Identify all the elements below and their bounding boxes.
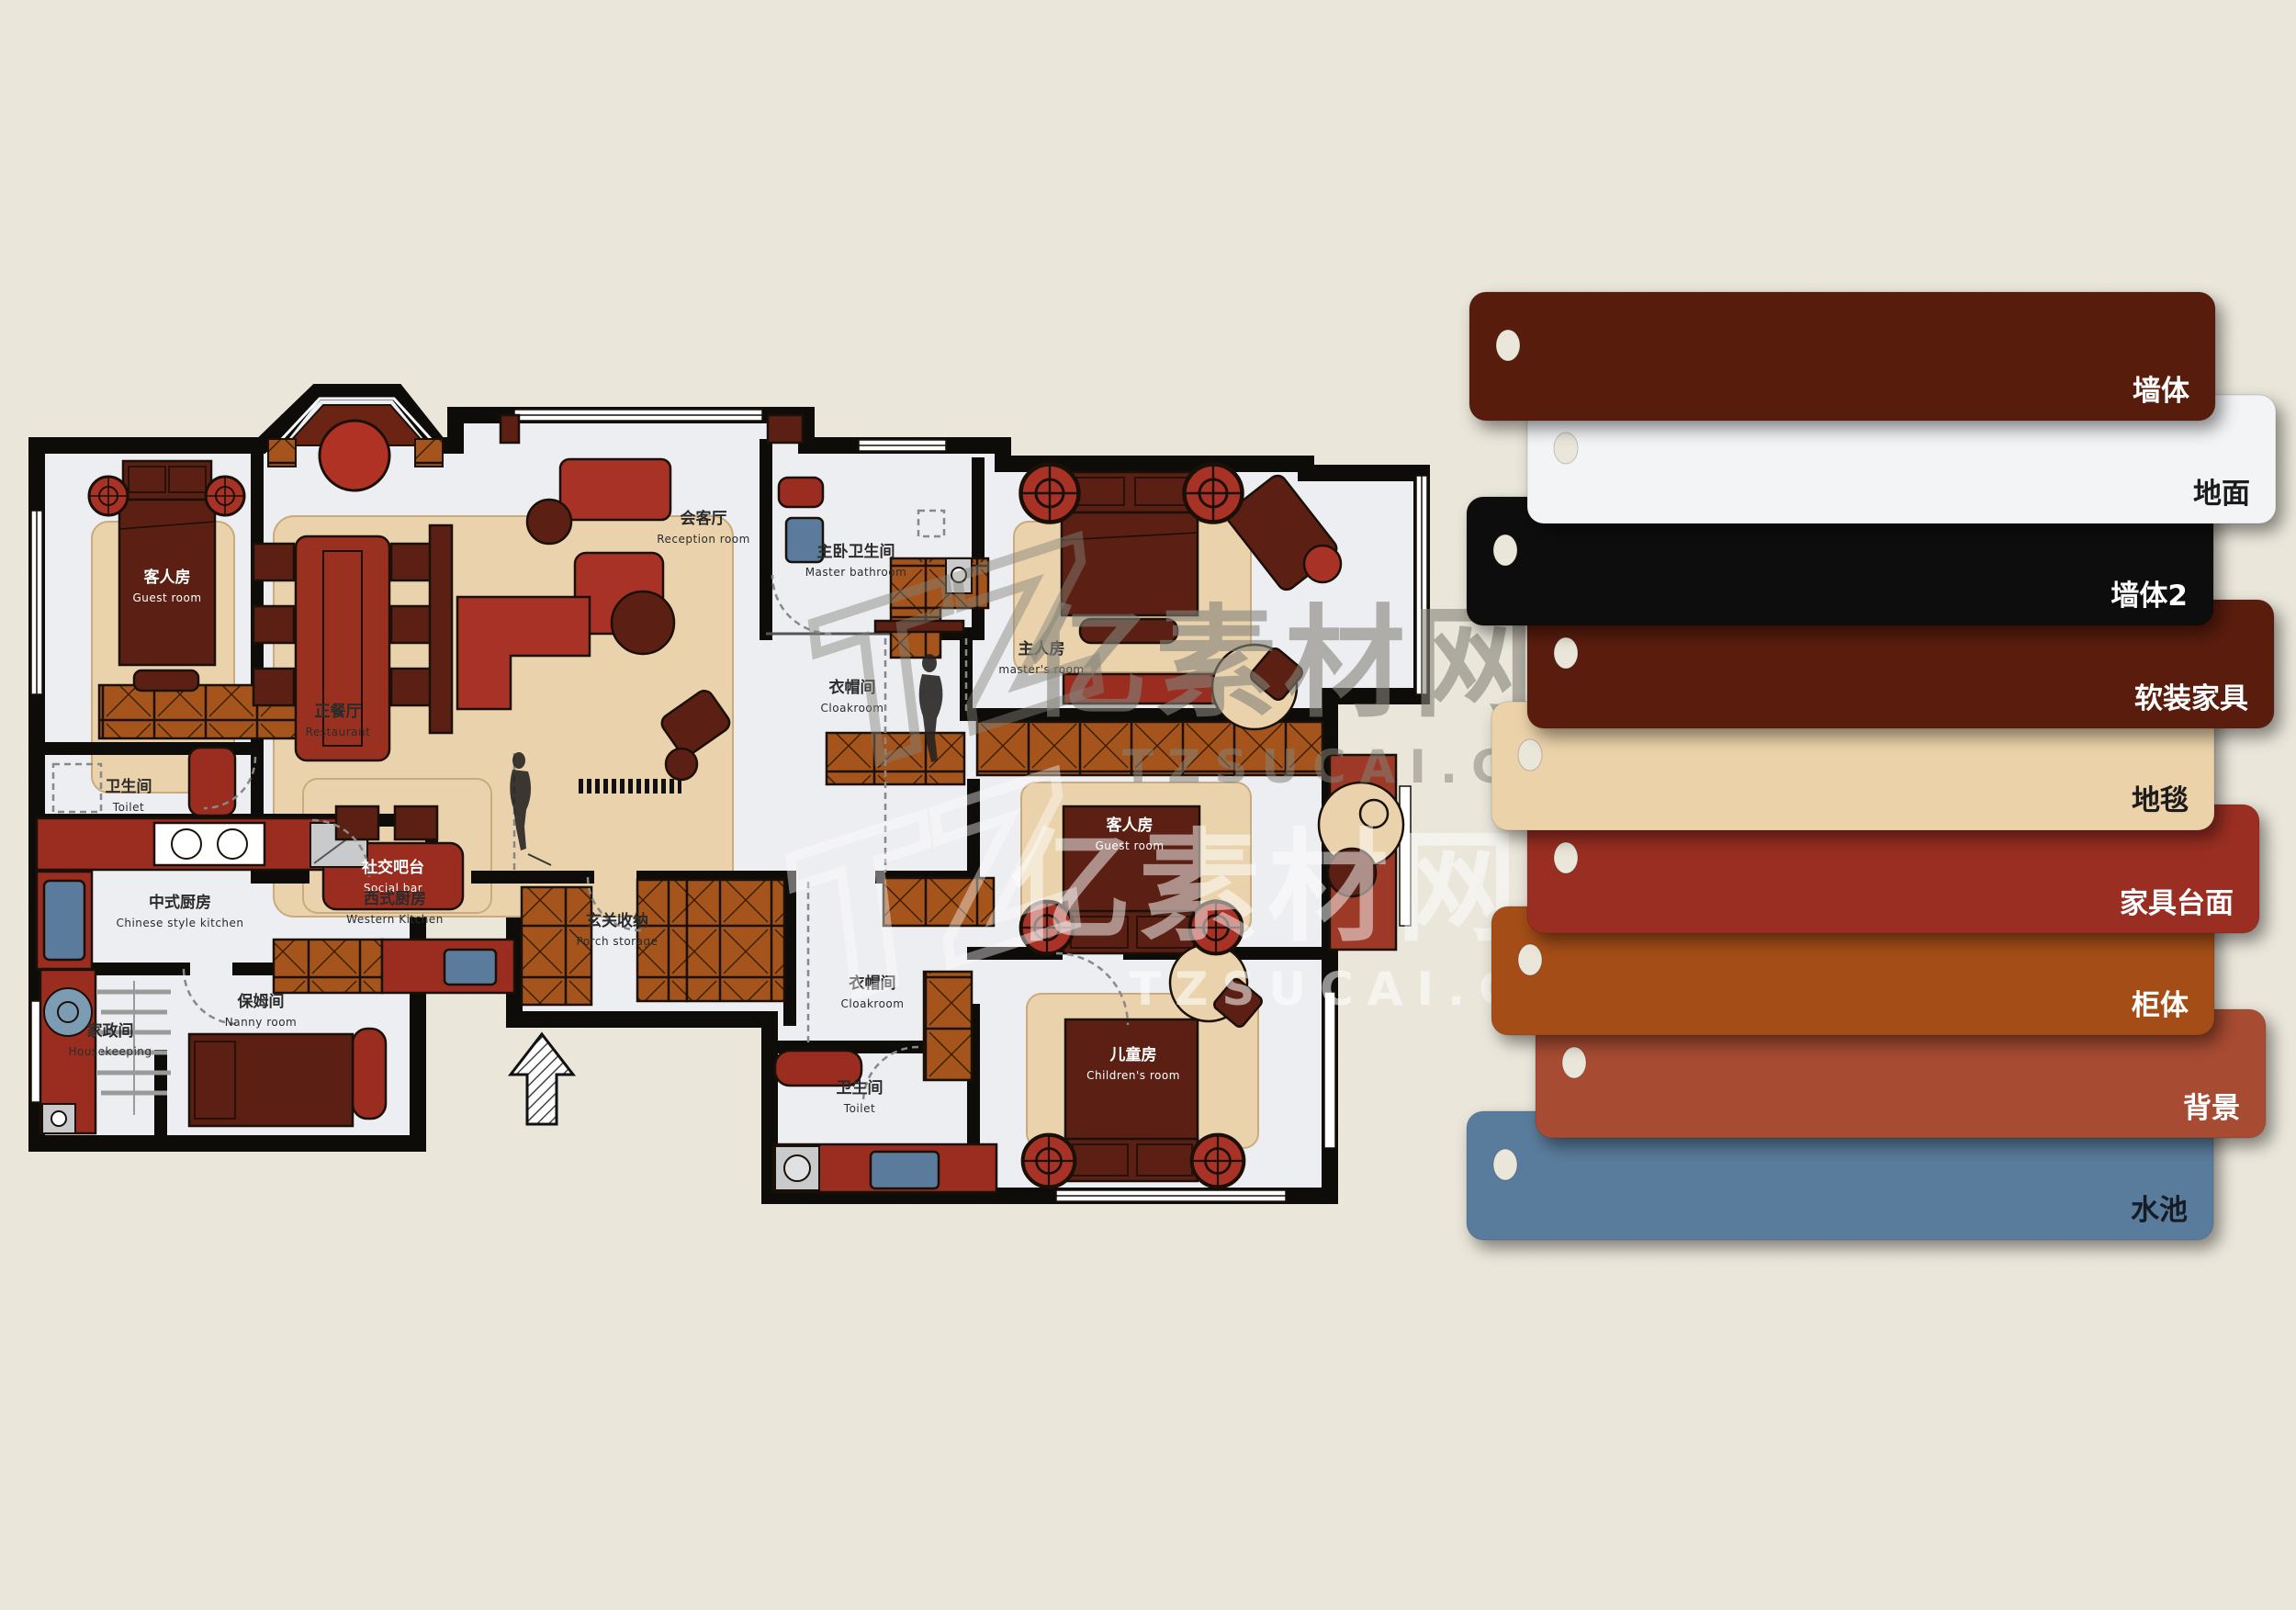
label-chinese-kitchen: 中式厨房: [149, 893, 211, 912]
watermark-brand-white: 亿素材网: [1010, 817, 1525, 959]
label-toilet-bottom: 卫生间: [837, 1078, 884, 1098]
svg-text:Housekeeping: Housekeeping: [68, 1045, 152, 1058]
label-guest-room-tl: 客人房: [143, 568, 191, 587]
label-reception: 会客厅: [681, 509, 727, 528]
label-childrens-room: 儿童房: [1109, 1045, 1157, 1064]
label-housekeeping: 家政间: [87, 1021, 134, 1041]
swatch-label: 地毯: [2132, 784, 2189, 817]
swatch-label: 水池: [2131, 1194, 2188, 1227]
swatch-label: 墙体2: [2110, 580, 2188, 613]
swatch-label: 家具台面: [2120, 887, 2234, 920]
swatch-label: 地面: [2193, 478, 2250, 511]
svg-text:Porch storage: Porch storage: [577, 935, 658, 948]
label-western-kitchen: 西式厨房: [364, 889, 426, 908]
svg-text:Toilet: Toilet: [843, 1102, 875, 1115]
swatch-card-qiangti: 墙体: [1469, 292, 2215, 421]
svg-text:Toilet: Toilet: [112, 801, 144, 814]
svg-text:Restaurant: Restaurant: [306, 726, 371, 738]
swatch-label: 柜体: [2132, 989, 2189, 1022]
watermark-brand: 亿素材网: [1027, 593, 1541, 735]
svg-text:Guest room: Guest room: [132, 591, 201, 604]
swatch-label: 软装家具: [2134, 682, 2248, 715]
label-toilet-left: 卫生间: [106, 777, 152, 796]
svg-text:Reception room: Reception room: [657, 533, 750, 546]
svg-text:Nanny room: Nanny room: [225, 1016, 298, 1029]
label-porch-storage: 玄关收纳: [586, 911, 648, 930]
label-restaurant: 正餐厅: [315, 702, 362, 721]
svg-text:Chinese style kitchen: Chinese style kitchen: [116, 917, 243, 929]
swatch-label: 背景: [2183, 1092, 2240, 1125]
svg-text:Western Kitchen: Western Kitchen: [346, 913, 444, 926]
palette-legend: 水池 背景 柜体 家具台面 地毯 软装家具: [1467, 292, 2276, 1240]
label-nanny-room: 保姆间: [237, 992, 285, 1011]
label-social-bar: 社交吧台: [361, 858, 424, 877]
swatch-label: 墙体: [2133, 375, 2189, 408]
material-sheet: 客人房 Guest room 会客厅 Reception room 正餐厅 Re…: [0, 0, 2296, 1610]
svg-text:Children's room: Children's room: [1086, 1069, 1180, 1082]
